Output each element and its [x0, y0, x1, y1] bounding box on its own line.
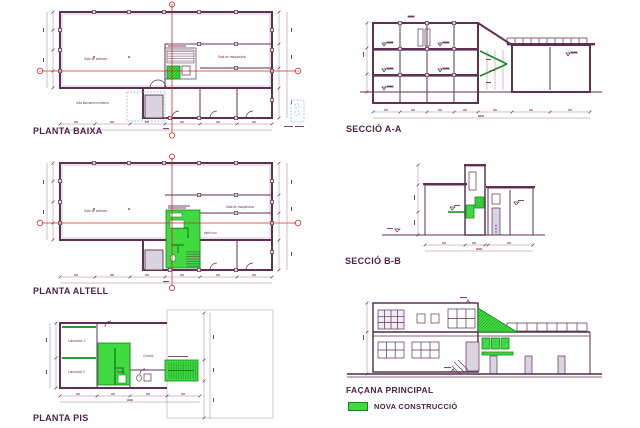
- facana-title: FAÇANA PRINCIPAL: [346, 385, 433, 395]
- facade-structure: [347, 303, 602, 377]
- seccio-bb: SECCIÓ B-B: [340, 150, 640, 290]
- new-rooms: [98, 343, 130, 385]
- new-stair-flights: [480, 50, 507, 90]
- axis-label-a-left: A: [39, 69, 41, 73]
- seccio-bb-drawing: [340, 150, 640, 290]
- mezzanine-label: altell nou: [204, 231, 217, 235]
- legend: NOVA CONSTRUCCIÓ: [348, 402, 458, 411]
- legend-swatch-nova-construccio: [348, 402, 368, 411]
- drawing-sheet: A A B: [0, 0, 640, 428]
- planta-baixa-title: PLANTA BAIXA: [33, 126, 103, 136]
- planta-pis-title: PLANTA PIS: [33, 413, 89, 423]
- axis-label-a-right: A: [297, 69, 299, 73]
- planta-pis-drawing: Laboratori 1 Laboratori 2 Control Bany: [0, 300, 340, 428]
- new-terrace-stair: [165, 356, 198, 381]
- section-structure: [360, 21, 602, 103]
- seccio-bb-title: SECCIÓ B-B: [345, 256, 401, 266]
- room-label-control: Control: [143, 354, 154, 358]
- room-label-right: Sala de maquinària: [218, 55, 246, 59]
- planta-altell: Sala de turbines Sala de maquinària alte…: [0, 150, 340, 300]
- level-marks: [382, 16, 577, 90]
- section-structure: [382, 164, 545, 235]
- facana-principal: FAÇANA PRINCIPAL NOVA CONSTRUCCIÓ: [340, 290, 640, 428]
- room-label-bany: Bany: [117, 370, 125, 374]
- room-label-left: Sala de turbines: [84, 57, 107, 61]
- planta-baixa: A A B: [0, 0, 340, 150]
- room-label-lab1: Laboratori 1: [68, 339, 85, 343]
- axis-label-b-top: B: [171, 3, 173, 7]
- planta-pis: Laboratori 1 Laboratori 2 Control Bany P…: [0, 300, 340, 428]
- stair-core: [165, 44, 196, 80]
- planta-altell-title: PLANTA ALTELL: [33, 286, 108, 296]
- room-label-left: Sala de turbines: [84, 209, 107, 213]
- new-mezzanine: [166, 206, 200, 269]
- legend-label: NOVA CONSTRUCCIÓ: [374, 402, 458, 411]
- planta-altell-drawing: Sala de turbines Sala de maquinària alte…: [0, 150, 340, 300]
- new-construction-facade: [478, 308, 517, 355]
- room-label-right: Sala de maquinària: [226, 205, 254, 209]
- seccio-aa: SECCIÓ A-A: [340, 0, 640, 150]
- room-label-lab2: Laboratori 2: [68, 370, 85, 374]
- note-left: línia tancament exterior: [76, 101, 110, 105]
- new-construction-elements: [448, 197, 524, 218]
- seccio-aa-title: SECCIÓ A-A: [346, 124, 402, 134]
